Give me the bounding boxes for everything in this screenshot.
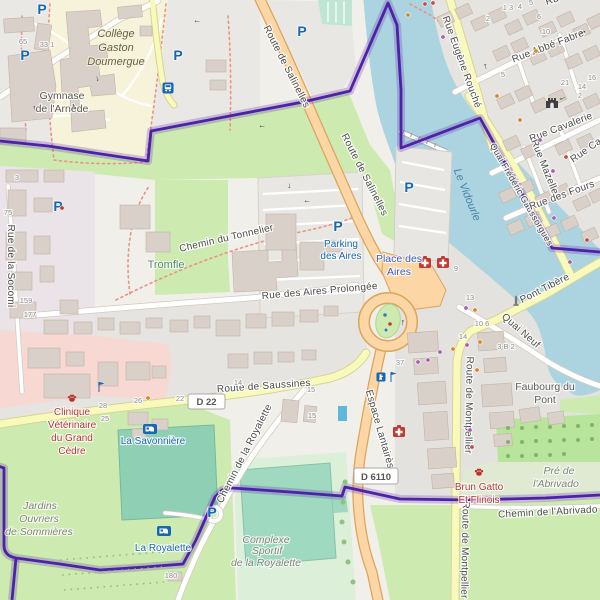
house-number: 14 — [578, 82, 586, 91]
clinique-label: Cèdre — [58, 446, 86, 457]
poi-dot — [426, 358, 430, 362]
poi-dot — [538, 138, 542, 142]
route-badge-d22: D 22 — [188, 394, 225, 409]
caravan-icon — [157, 526, 171, 536]
jardins-label: de Sommières — [5, 526, 73, 538]
poi-dot — [441, 35, 445, 39]
college-label: Collège — [97, 28, 134, 40]
tromfle-label: Tromfle — [148, 259, 185, 271]
poi-dot — [585, 238, 589, 242]
drinking-water-icon — [377, 373, 386, 382]
oneway-arrow-icon: → — [258, 123, 266, 132]
house-number: 159 — [20, 296, 33, 305]
house-number: 6 — [537, 12, 541, 21]
clinique-label: du Grand — [51, 433, 93, 444]
house-number: 3 — [15, 173, 19, 182]
poi-dot — [534, 49, 538, 53]
parking-icon: P — [333, 218, 342, 234]
gymnase-label: Gymnase — [40, 90, 85, 102]
poi-dot — [451, 347, 455, 351]
la-royalette-label: La Royalette — [135, 543, 192, 554]
pre-abrivado-label: l'Abrivado — [533, 478, 579, 490]
faubourg-label: Faubourg du — [515, 381, 575, 393]
poi-dot — [438, 350, 442, 354]
house-number: 26 — [134, 396, 142, 405]
parking-aires-label: Parking — [324, 239, 358, 250]
house-number: 14 — [459, 332, 467, 341]
poi-dot — [551, 169, 555, 173]
house-number: 10 6 — [475, 319, 490, 328]
house-number: 28 — [99, 401, 107, 410]
brun-gatto-label: Brun Gatto — [455, 482, 504, 493]
oneway-arrow-icon: → — [286, 182, 295, 190]
house-number: 3 B 2 — [497, 342, 515, 351]
place-des-aires-label: Place des — [376, 253, 422, 265]
poi-dot — [60, 206, 64, 210]
house-number: 4 — [518, 2, 522, 11]
college-label: Doumergue — [87, 56, 144, 68]
poi-dot — [464, 306, 468, 310]
pool-rect — [338, 406, 347, 421]
street-label-socomi: Rue de la Socomi — [5, 225, 16, 308]
clinique-label: Vétérinaire — [48, 420, 97, 431]
parking-icon: P — [404, 179, 413, 195]
oneway-arrow-icon: → — [303, 198, 311, 207]
poi-dot — [495, 94, 499, 98]
street-label-montpellier: Route de Montpellier — [458, 501, 471, 599]
oneway-arrow-icon: → — [193, 18, 201, 27]
brun-gatto-label: Et Flinois — [458, 495, 499, 506]
house-number: 2 — [486, 14, 490, 23]
poi-dot — [518, 118, 522, 122]
parking-icon: P — [297, 23, 306, 39]
poi-dot — [423, 2, 427, 6]
house-number: 33 1 — [40, 40, 55, 49]
complexe-label: Sportif — [252, 545, 283, 557]
poi-dot — [431, 1, 435, 5]
map-canvas[interactable]: P P P P P P P P — [0, 0, 600, 600]
poi-dot — [564, 155, 568, 159]
poi-dot — [473, 308, 477, 312]
street-label-montpellier: Route de Montpellier — [462, 356, 475, 454]
jardins-label: Ouvriers — [19, 513, 59, 525]
house-number: 13 — [466, 293, 474, 302]
house-number: 180 — [165, 571, 178, 580]
gymnase-label: de l'Arnède — [36, 103, 89, 115]
route-badge-text: D 6110 — [361, 472, 391, 483]
complexe-label: de la Royalette — [231, 557, 301, 569]
poi-dot — [465, 343, 469, 347]
house-number: 1 3 — [503, 3, 513, 12]
college-label: Gaston — [98, 42, 133, 54]
house-number: 10 — [542, 27, 550, 36]
poi-dot — [478, 340, 482, 344]
house-number: 25 — [101, 414, 109, 423]
map-svg: P P P P P P P P — [0, 0, 600, 600]
house-number: 21 — [561, 78, 569, 87]
house-number: 16 — [588, 73, 596, 82]
house-number: 5 — [501, 70, 505, 79]
house-number: 22 — [176, 394, 184, 403]
poi-dot — [406, 13, 410, 17]
house-number: 75 — [4, 208, 12, 217]
parking-icon: P — [37, 1, 46, 17]
house-number: 5 — [529, 0, 533, 7]
parking-icon: P — [173, 47, 182, 63]
route-badge-text: D 22 — [196, 397, 216, 408]
jardins-label: Jardins — [22, 500, 58, 512]
place-des-aires-label: Aires — [387, 266, 411, 278]
poi-dot — [146, 396, 150, 400]
caravan-icon — [143, 424, 157, 434]
la-savonniere-label: La Savonnière — [121, 436, 186, 447]
bus-stop-icon — [163, 83, 174, 94]
poi-dot — [568, 260, 572, 264]
parking-icon: P — [207, 504, 216, 520]
house-number: 177 — [24, 310, 37, 319]
house-number: 9 — [454, 264, 458, 273]
house-number: 65 — [19, 37, 27, 46]
faubourg-label: Pont — [534, 394, 556, 406]
poi-dot — [468, 428, 472, 432]
clinique-label: Clinique — [54, 407, 91, 418]
parking-aires-label: des Aires — [320, 251, 361, 262]
pre-abrivado-label: Pré de — [544, 465, 575, 477]
poi-dot — [552, 216, 556, 220]
house-number: 15 — [307, 385, 315, 394]
parking-icon: P — [20, 47, 29, 63]
poi-dot — [416, 360, 420, 364]
house-number: 14 — [234, 378, 242, 387]
route-badge-d6110: D 6110 — [354, 468, 398, 484]
poi-dot — [475, 368, 479, 372]
house-number: 37 — [396, 358, 404, 367]
house-number: 2 — [578, 91, 582, 100]
oneway-arrow-icon: → — [395, 317, 406, 328]
house-number: 15 — [308, 411, 316, 420]
poi-dot — [470, 445, 474, 449]
